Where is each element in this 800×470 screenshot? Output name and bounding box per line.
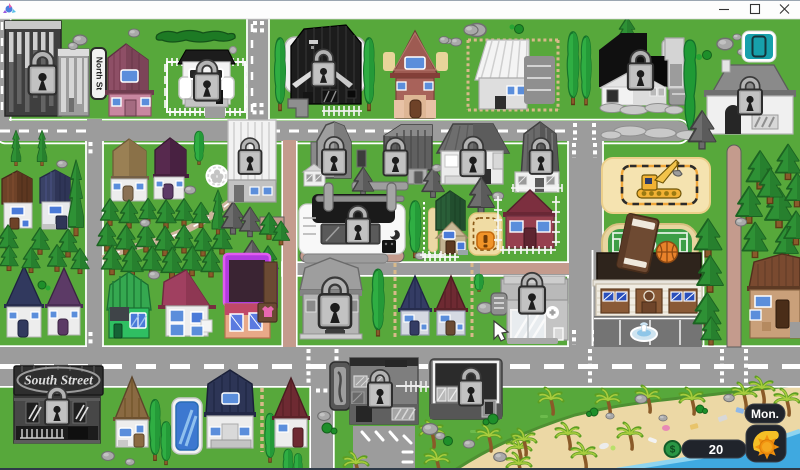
svg-text:20: 20 [709, 442, 723, 457]
svg-text:$: $ [670, 445, 676, 456]
svg-text:Mon.: Mon. [751, 407, 779, 421]
svg-text:South Street: South Street [24, 373, 94, 388]
svg-text:North St: North St [94, 57, 104, 91]
